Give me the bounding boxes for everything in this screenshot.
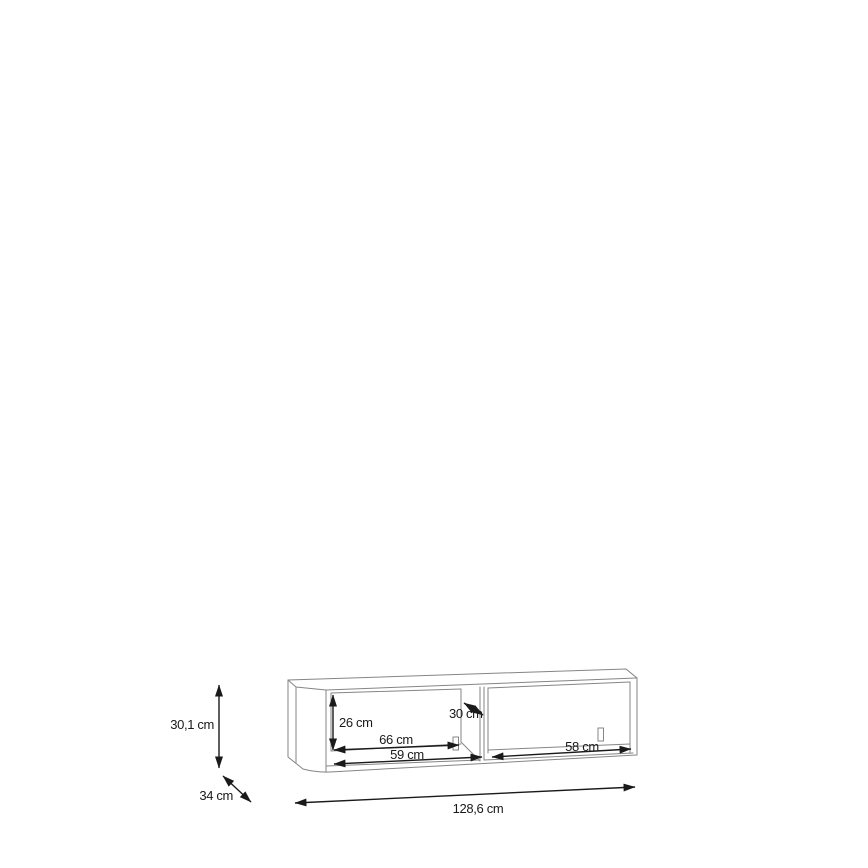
left-compartment-width-label: 66 cm xyxy=(379,732,413,747)
page-background: 30,1 cm 34 cm 128,6 cm 26 cm 30 cm 66 cm… xyxy=(0,0,868,868)
overall-width-label: 128,6 cm xyxy=(453,801,504,816)
overall-depth-label: 34 cm xyxy=(199,788,233,803)
right-compartment-back-bottom-edge xyxy=(488,744,630,750)
cabinet-top-back-edge xyxy=(288,669,637,680)
overall-height-label: 30,1 cm xyxy=(170,717,214,732)
divider-depth-label: 30 cm xyxy=(449,706,483,721)
left-compartment-ceiling xyxy=(331,689,461,693)
right-compartment-width-arrow xyxy=(492,749,631,757)
left-mount-bracket xyxy=(453,737,459,750)
inner-height-label: 26 cm xyxy=(339,715,373,730)
furniture-dimension-diagram: 30,1 cm 34 cm 128,6 cm 26 cm 30 cm 66 cm… xyxy=(0,0,868,868)
